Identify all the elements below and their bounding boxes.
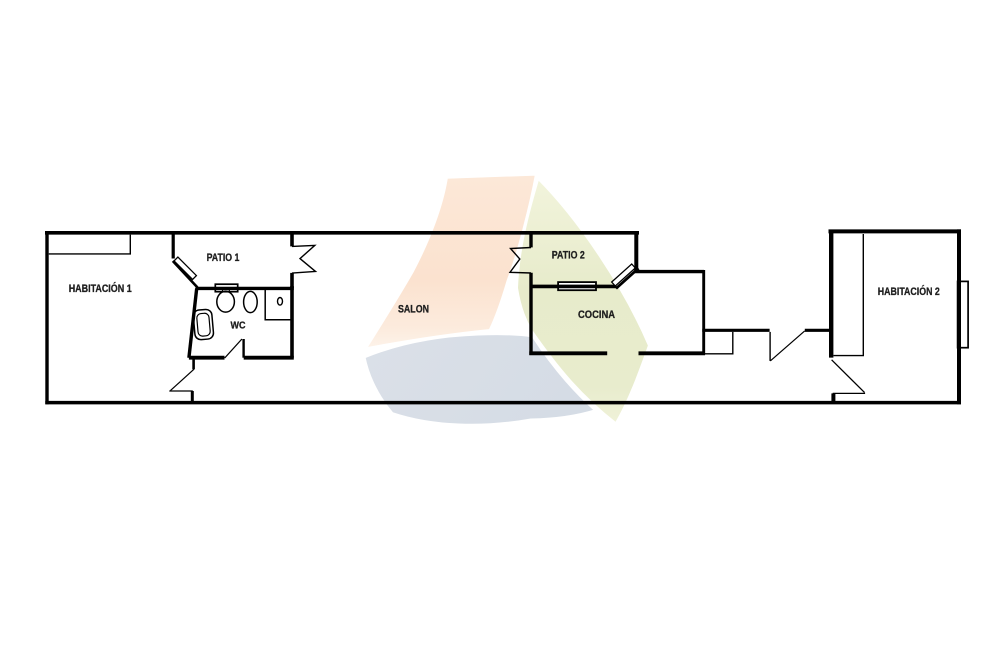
svg-text:HABITACIÓN 1: HABITACIÓN 1 bbox=[69, 282, 132, 295]
svg-text:PATIO 2: PATIO 2 bbox=[552, 250, 585, 262]
svg-text:WC: WC bbox=[231, 321, 246, 332]
svg-text:COCINA: COCINA bbox=[578, 309, 615, 321]
svg-text:HABITACIÓN 2: HABITACIÓN 2 bbox=[878, 285, 940, 298]
svg-text:SALON: SALON bbox=[398, 303, 429, 315]
svg-text:PATIO 1: PATIO 1 bbox=[207, 252, 240, 264]
